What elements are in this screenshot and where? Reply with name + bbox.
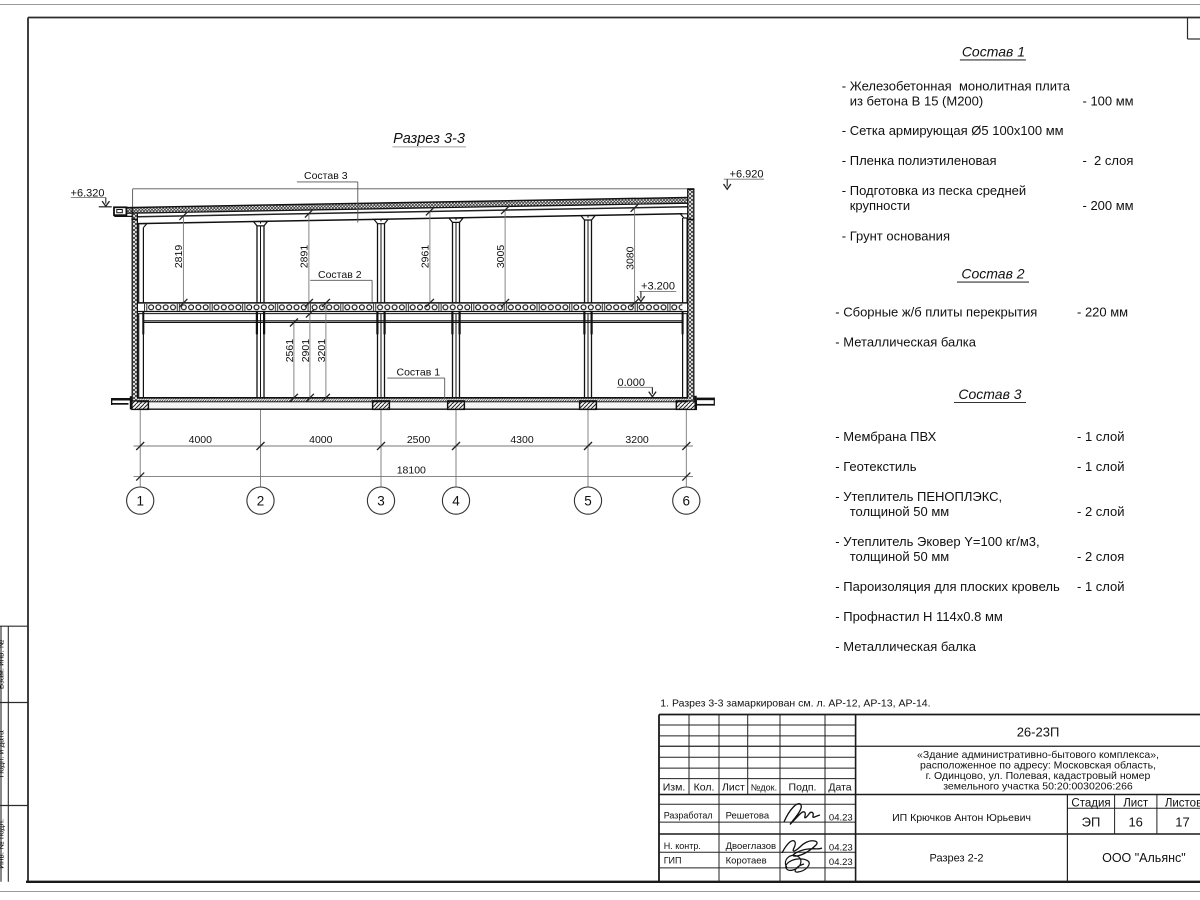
svg-text:2901: 2901 [300, 339, 312, 363]
svg-text:2561: 2561 [284, 339, 296, 363]
svg-text:- Металлическая балка: - Металлическая балка [835, 335, 976, 350]
svg-text:3005: 3005 [495, 245, 507, 269]
svg-text:Состав 3: Состав 3 [958, 386, 1021, 402]
svg-text:4000: 4000 [309, 434, 333, 446]
svg-text:толщиной 50 мм: толщиной 50 мм [850, 504, 950, 519]
svg-text:Дата: Дата [828, 781, 851, 793]
svg-text:- 2 слой: - 2 слой [1077, 504, 1125, 519]
svg-text:2500: 2500 [407, 434, 431, 446]
svg-text:- 1 слой: - 1 слой [1077, 459, 1125, 474]
svg-text:из бетона В 15 (М200): из бетона В 15 (М200) [850, 93, 984, 108]
svg-text:ИП Крючков Антон Юрьевич: ИП Крючков Антон Юрьевич [892, 812, 1031, 824]
svg-text:Инв. № подл.: Инв. № подл. [0, 819, 6, 869]
svg-text:- 100 мм: - 100 мм [1083, 93, 1134, 108]
svg-text:ГИП: ГИП [664, 855, 682, 865]
svg-text:Состав 3: Состав 3 [304, 170, 348, 182]
svg-text:земельного участка 50:20:00302: земельного участка 50:20:0030206:266 [943, 781, 1133, 793]
svg-text:- 200 мм: - 200 мм [1083, 198, 1134, 213]
svg-text:- 2 слоя: - 2 слоя [1077, 549, 1124, 564]
svg-text:- Металлическая балка: - Металлическая балка [835, 639, 976, 654]
svg-text:3: 3 [377, 493, 385, 508]
svg-text:26-23П: 26-23П [1017, 725, 1060, 740]
svg-text:+6.920: +6.920 [730, 168, 764, 180]
svg-text:- 2 слоя: - 2 слоя [1083, 153, 1134, 168]
svg-text:Состав 2: Состав 2 [961, 266, 1024, 282]
svg-text:Двоеглазов: Двоеглазов [726, 841, 777, 852]
svg-text:Состав 1: Состав 1 [962, 43, 1025, 59]
svg-text:04.23: 04.23 [829, 843, 853, 854]
svg-text:04.23: 04.23 [829, 812, 853, 823]
svg-text:4300: 4300 [510, 434, 534, 446]
svg-text:16: 16 [1128, 815, 1142, 830]
svg-text:Кол.: Кол. [694, 781, 715, 793]
svg-text:- 1 слой: - 1 слой [1077, 429, 1125, 444]
svg-text:Разработал: Разработал [664, 811, 713, 821]
svg-text:Подп. и дата: Подп. и дата [0, 730, 6, 778]
svg-text:3080: 3080 [624, 246, 636, 270]
svg-text:Стадия: Стадия [1071, 798, 1110, 810]
svg-text:- Железобетонная монолитная п: - Железобетонная монолитная плита [842, 79, 1071, 94]
svg-text:Взам. инв. №: Взам. инв. № [0, 639, 6, 689]
svg-text:№док.: №док. [751, 782, 777, 792]
svg-text:Н. контр.: Н. контр. [664, 841, 701, 851]
svg-text:4: 4 [452, 493, 460, 508]
svg-text:Решетова: Решетова [726, 811, 770, 822]
svg-text:2961: 2961 [420, 245, 432, 269]
svg-text:крупности: крупности [850, 198, 910, 213]
svg-text:18100: 18100 [397, 464, 426, 476]
svg-text:- Пленка полиэтиленовая: - Пленка полиэтиленовая [842, 153, 997, 168]
svg-text:2819: 2819 [173, 245, 185, 269]
svg-text:- Грунт основания: - Грунт основания [842, 229, 950, 244]
svg-text:ООО "Альянс": ООО "Альянс" [1102, 851, 1186, 865]
svg-text:- Утеплитель Эковер Y=100 кг/м: - Утеплитель Эковер Y=100 кг/м3, [835, 534, 1039, 549]
svg-text:Состав 2: Состав 2 [318, 269, 362, 281]
svg-text:- Пароизоляция для плоских кро: - Пароизоляция для плоских кровель [835, 579, 1060, 594]
svg-text:17: 17 [1175, 815, 1189, 830]
svg-text:Листов: Листов [1165, 798, 1200, 810]
svg-text:2: 2 [257, 493, 265, 508]
svg-text:2891: 2891 [299, 245, 311, 269]
svg-text:- Сетка армирующая Ø5 100х100: - Сетка армирующая Ø5 100х100 мм [842, 123, 1064, 138]
svg-text:Изм.: Изм. [663, 781, 686, 793]
svg-text:4000: 4000 [189, 434, 213, 446]
svg-text:1. Разрез 3-3 замаркирован см.: 1. Разрез 3-3 замаркирован см. л. АР-12,… [660, 697, 930, 709]
svg-text:Коротаев: Коротаев [726, 855, 767, 866]
svg-text:3201: 3201 [316, 339, 328, 363]
svg-text:1: 1 [136, 493, 144, 508]
svg-text:- Утеплитель ПЕНОПЛЭКС,: - Утеплитель ПЕНОПЛЭКС, [835, 489, 1002, 504]
svg-text:- Геотекстиль: - Геотекстиль [835, 459, 916, 474]
svg-text:04.23: 04.23 [829, 857, 853, 868]
svg-text:5: 5 [584, 493, 592, 508]
svg-text:+3.200: +3.200 [641, 281, 675, 293]
svg-text:- Подготовка из песка средней: - Подготовка из песка средней [842, 183, 1026, 198]
svg-text:Разрез 3-3: Разрез 3-3 [393, 131, 465, 147]
svg-text:3200: 3200 [625, 434, 649, 446]
svg-text:Состав 1: Состав 1 [397, 367, 441, 379]
svg-text:Разрез 2-2: Разрез 2-2 [929, 853, 983, 865]
svg-text:Лист: Лист [1123, 798, 1149, 810]
svg-text:Лист: Лист [722, 781, 745, 793]
svg-text:- Мембрана ПВХ: - Мембрана ПВХ [835, 429, 936, 444]
svg-text:толщиной 50 мм: толщиной 50 мм [850, 549, 950, 564]
svg-text:- Профнастил Н 114х0.8 мм: - Профнастил Н 114х0.8 мм [835, 609, 1003, 624]
svg-text:- Сборные ж/б плиты перекрытия: - Сборные ж/б плиты перекрытия [835, 305, 1037, 320]
svg-text:6: 6 [683, 493, 691, 508]
svg-text:Подп.: Подп. [789, 781, 817, 793]
svg-text:- 1 слой: - 1 слой [1077, 579, 1125, 594]
svg-text:ЭП: ЭП [1082, 815, 1101, 830]
svg-text:- 220 мм: - 220 мм [1077, 305, 1128, 320]
